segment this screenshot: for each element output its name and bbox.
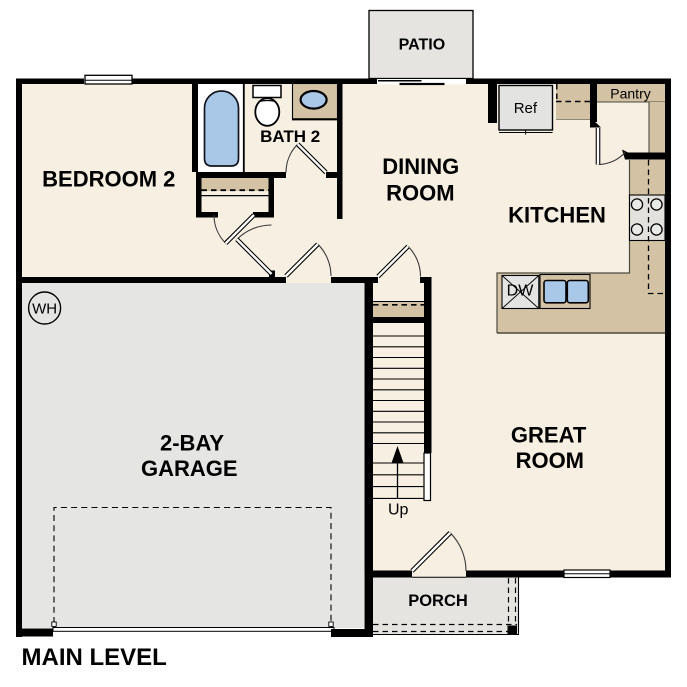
svg-text:ROOM: ROOM [516, 448, 584, 473]
svg-text:DINING: DINING [382, 154, 459, 179]
svg-text:MAIN LEVEL: MAIN LEVEL [22, 644, 167, 671]
svg-text:PATIO: PATIO [399, 37, 446, 54]
svg-text:2-BAY: 2-BAY [160, 431, 224, 456]
svg-text:Up: Up [388, 502, 409, 519]
svg-text:GARAGE: GARAGE [141, 456, 238, 481]
svg-text:WH: WH [32, 301, 57, 318]
svg-text:Pantry: Pantry [610, 86, 650, 102]
svg-text:Ref: Ref [514, 100, 538, 117]
svg-text:BATH 2: BATH 2 [260, 127, 320, 146]
svg-text:GREAT: GREAT [511, 422, 587, 447]
svg-text:ROOM: ROOM [386, 181, 454, 206]
svg-text:DW: DW [507, 283, 535, 300]
svg-text:PORCH: PORCH [408, 592, 468, 610]
svg-text:BEDROOM 2: BEDROOM 2 [42, 167, 175, 192]
svg-text:KITCHEN: KITCHEN [508, 203, 606, 228]
